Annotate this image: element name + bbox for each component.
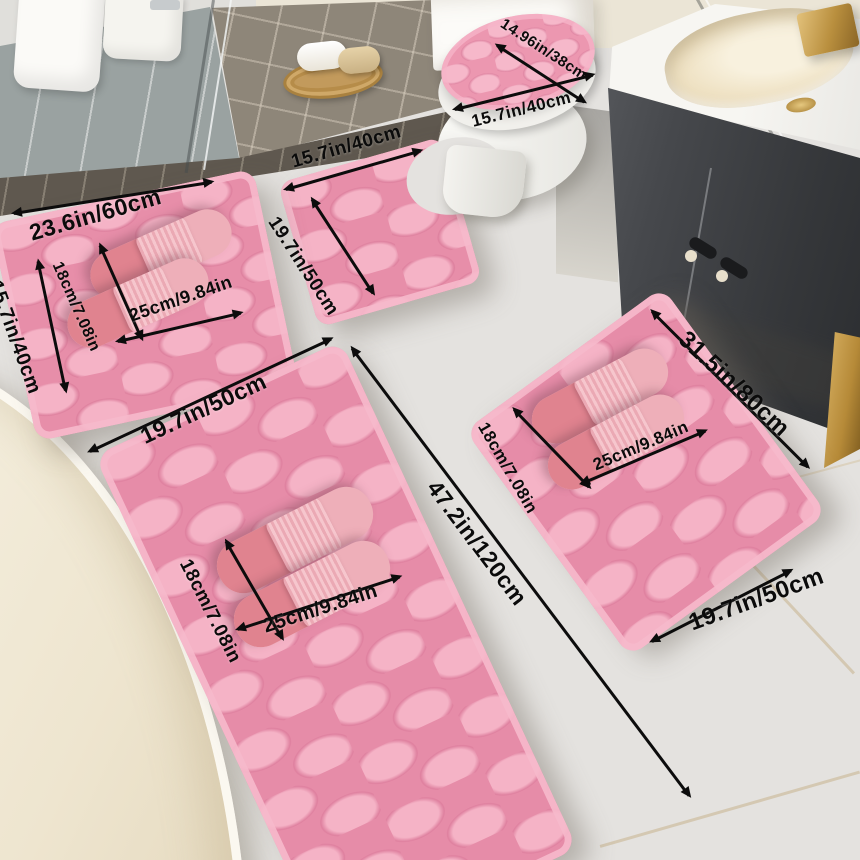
toilet-pedestal <box>441 144 528 220</box>
towel-bar <box>150 0 180 10</box>
bathroom-product-photo: 14.96in/38cm 15.7in/40cm 15.7in/40cm 19.… <box>0 0 860 860</box>
cabinet-knob-tip <box>685 250 697 262</box>
hanging-towel-large <box>13 0 106 93</box>
floor-tile-line <box>600 771 860 848</box>
cabinet-knob-tip <box>716 270 728 282</box>
